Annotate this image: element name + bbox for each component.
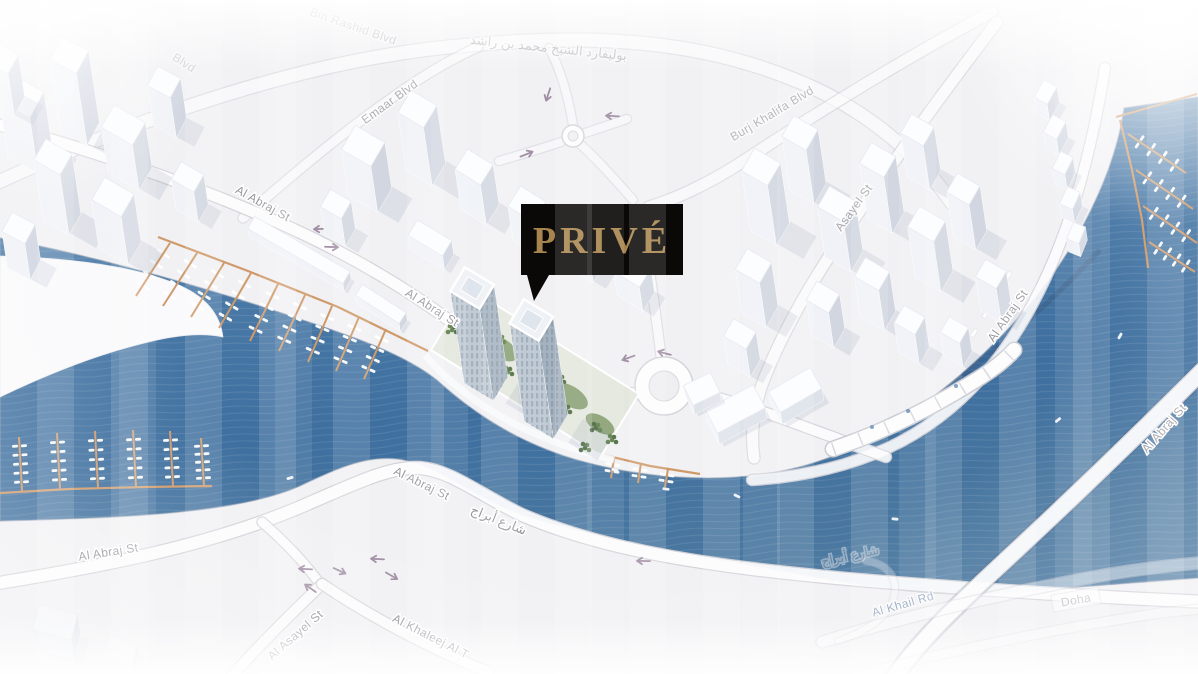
rooftop-pool (954, 384, 958, 388)
tree (508, 367, 513, 372)
prive-location-map: Blvd Bin Rashid Blvd بوليفارد الشيخ محمد… (0, 0, 1198, 674)
tree (568, 410, 573, 415)
rooftop-pool (870, 425, 874, 429)
callout-label: PRIVÉ (533, 220, 671, 262)
rooftop-pool (906, 409, 910, 413)
map-canvas: Blvd Bin Rashid Blvd بوليفارد الشيخ محمد… (0, 0, 1198, 674)
tree (614, 440, 619, 445)
tree (612, 435, 617, 440)
tree (446, 330, 451, 335)
roundabout-small (562, 125, 584, 147)
tree (510, 372, 515, 377)
tree (596, 423, 601, 428)
